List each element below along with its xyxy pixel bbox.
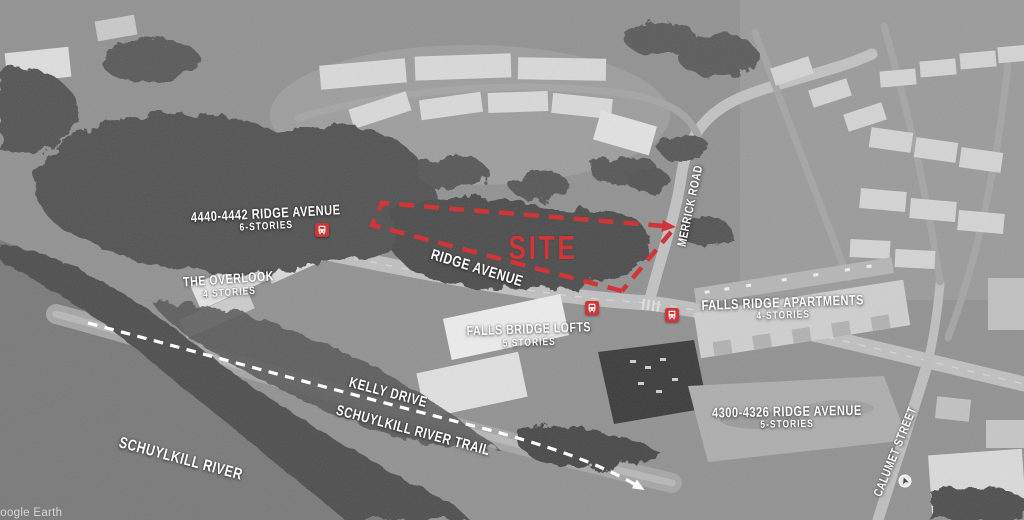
building-label-falls-bridge-lofts: FALLS BRIDGE LOFTS 5 STORIES [466, 320, 591, 352]
bus-icon [667, 310, 677, 320]
bus-stop-icon [665, 308, 679, 322]
google-earth-watermark: Google Earth [0, 507, 62, 519]
aerial-site-map: 4440-4442 RIDGE AVENUE 6-STORIES THE OVE… [0, 0, 1024, 520]
bus-stop-icon [585, 301, 599, 315]
bus-stop-icon [315, 223, 329, 237]
building-label-falls-ridge-apartments: FALLS RIDGE APARTMENTS 4-STORIES [701, 292, 864, 326]
road-marker-icon [898, 474, 912, 488]
bus-icon [587, 303, 597, 313]
building-stories: 5-STORIES [712, 419, 862, 434]
bus-icon [317, 225, 327, 235]
site-label: SITE [508, 230, 577, 269]
building-label-4300-4326-ridge-avenue: 4300-4326 RIDGE AVENUE 5-STORIES [712, 403, 862, 434]
